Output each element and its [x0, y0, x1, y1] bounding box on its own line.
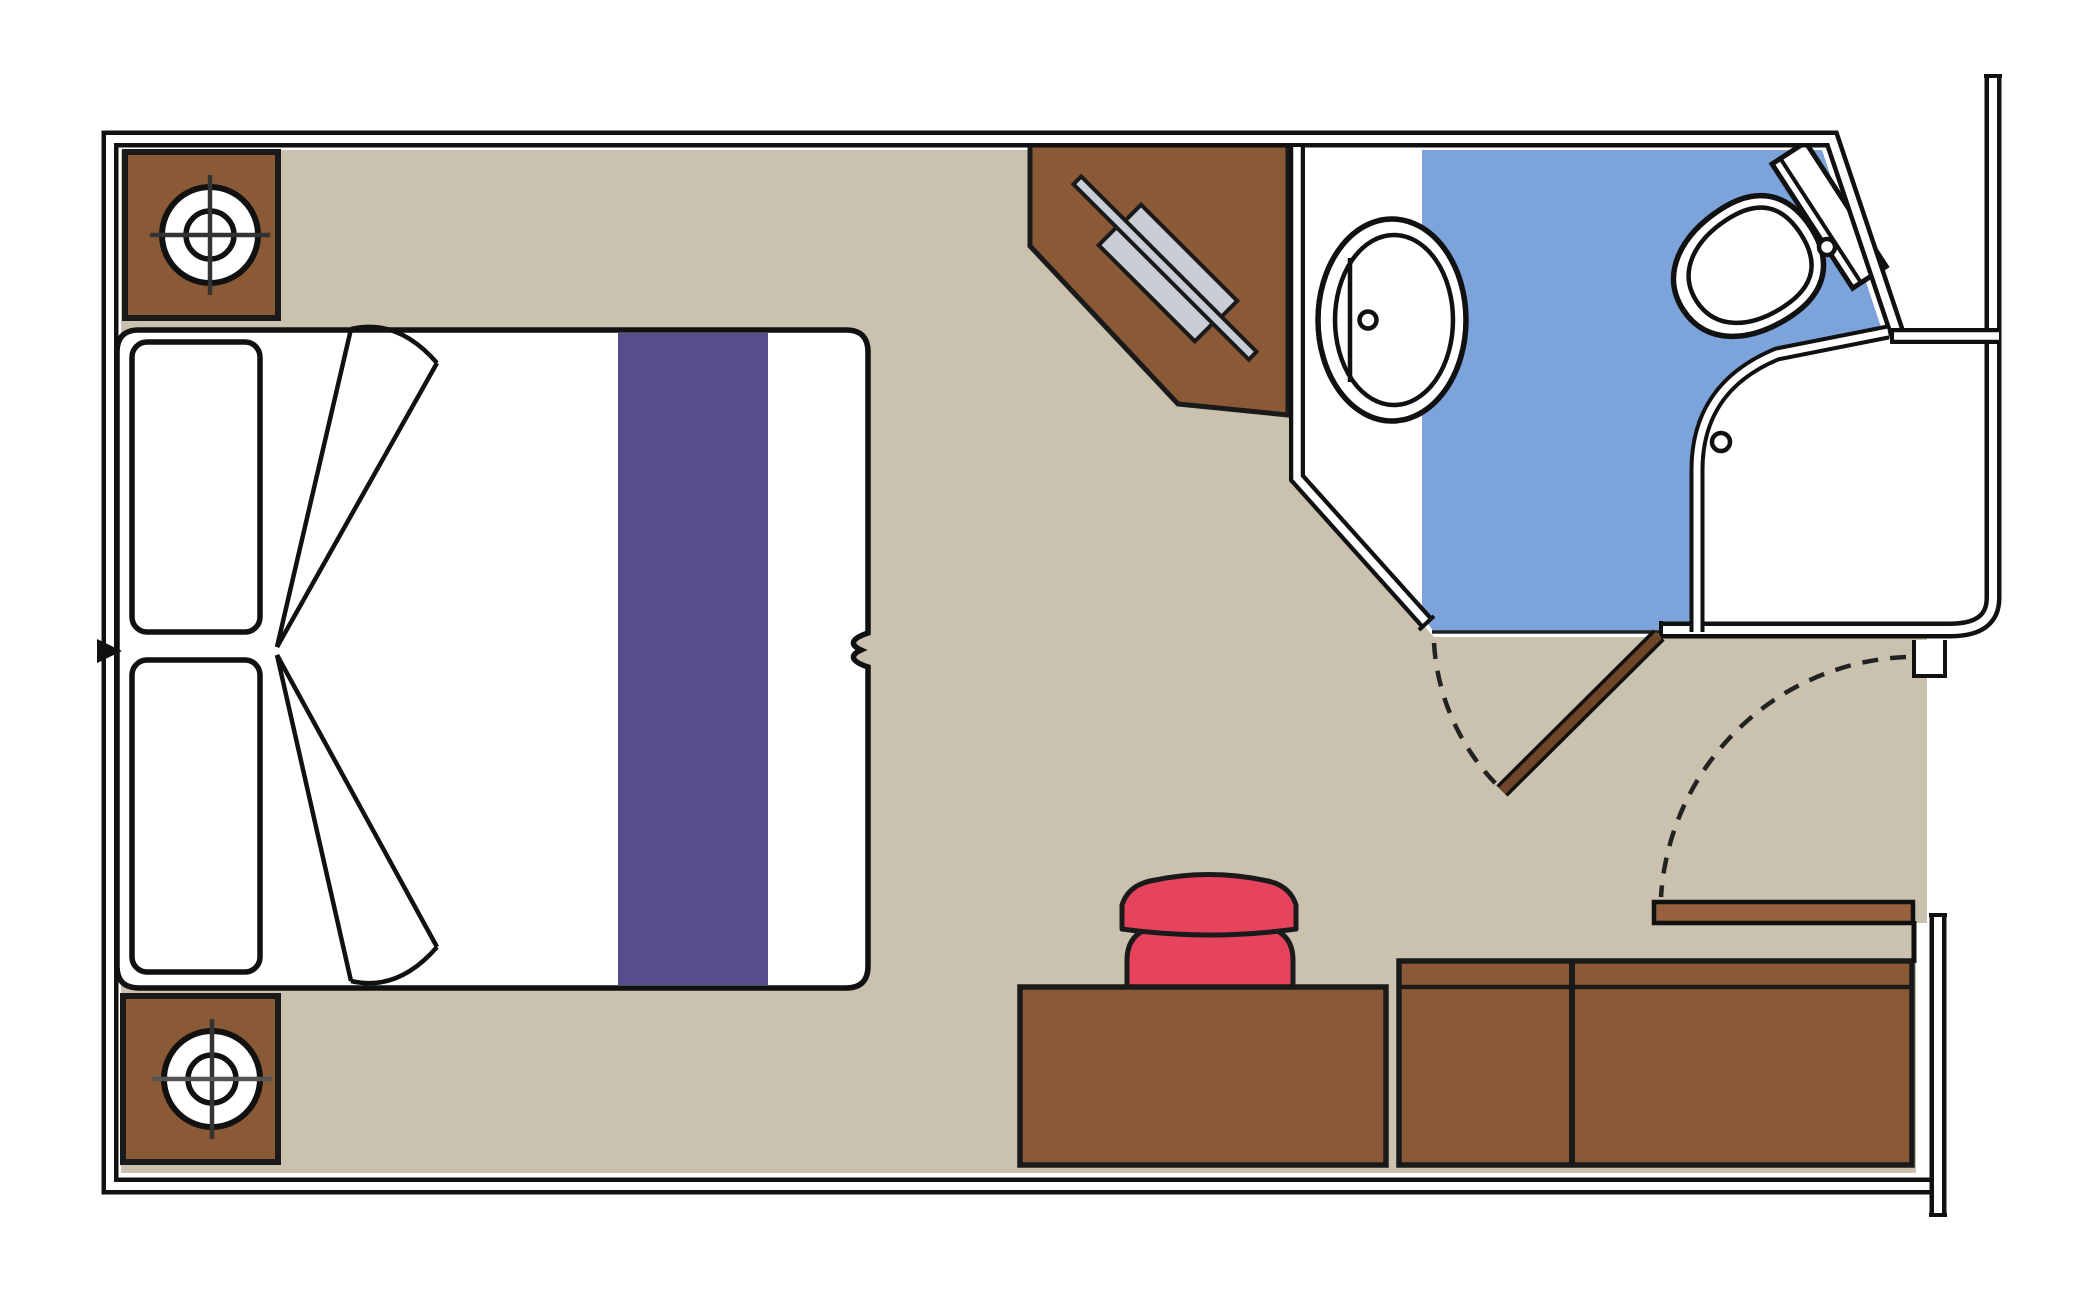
bed-runner	[618, 333, 768, 985]
desk	[1020, 987, 1386, 1165]
wall-cavity	[1916, 923, 1930, 1215]
pillow	[132, 342, 260, 632]
pillow	[132, 660, 260, 972]
cabin-floor-plan	[0, 0, 2099, 1299]
sink-drain-icon	[1360, 312, 1377, 329]
nightstand-bottom	[123, 996, 278, 1162]
bathroom-knob-icon	[1712, 433, 1730, 451]
stool	[1122, 875, 1296, 993]
outside-right	[1930, 637, 2099, 1299]
wardrobe	[1399, 961, 1912, 1165]
stool-back	[1122, 875, 1296, 936]
entry-door-leaf	[1654, 902, 1913, 923]
nightstand-top	[125, 152, 278, 318]
door-jamb-stub	[1914, 640, 1945, 676]
toilet-flush-icon	[1819, 239, 1835, 255]
sink	[1318, 219, 1466, 421]
bed	[117, 327, 868, 988]
